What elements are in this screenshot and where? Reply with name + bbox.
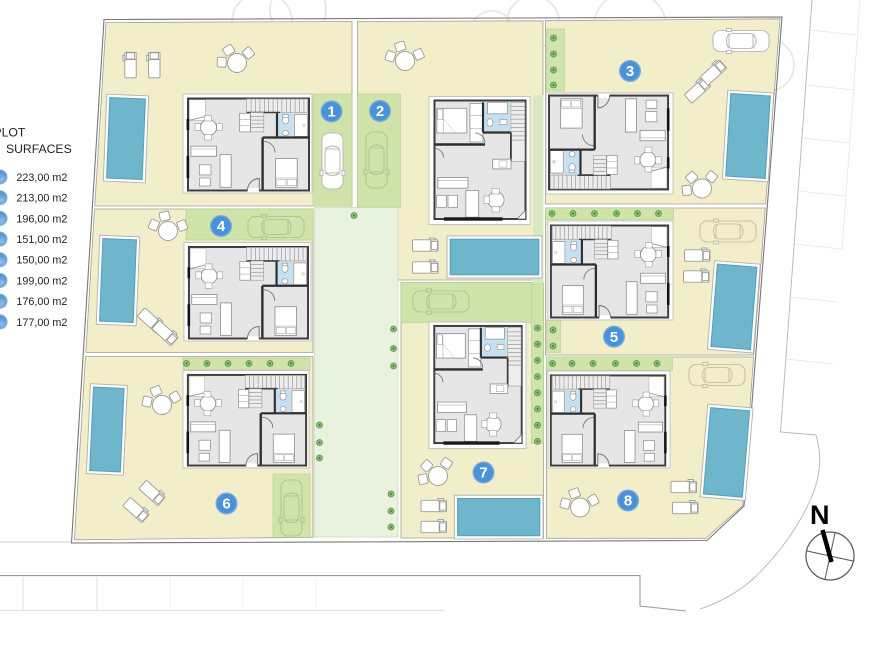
- svg-text:213,00 m2: 213,00 m2: [16, 193, 67, 205]
- svg-text:177,00 m2: 177,00 m2: [16, 317, 67, 329]
- svg-text:7: 7: [479, 465, 487, 482]
- svg-text:223,00 m2: 223,00 m2: [16, 172, 67, 184]
- svg-text:2: 2: [376, 103, 384, 120]
- svg-text:199,00 m2: 199,00 m2: [16, 275, 67, 287]
- svg-text:5: 5: [610, 329, 618, 346]
- svg-text:4: 4: [217, 218, 226, 235]
- svg-text:176,00 m2: 176,00 m2: [16, 296, 67, 308]
- svg-text:N: N: [810, 500, 830, 530]
- svg-text:1: 1: [327, 104, 335, 121]
- svg-text:150,00 m2: 150,00 m2: [16, 255, 67, 267]
- svg-text:8: 8: [624, 493, 632, 510]
- svg-text:151,00 m2: 151,00 m2: [16, 234, 67, 246]
- svg-text:6: 6: [222, 496, 230, 513]
- svg-text:PLOT: PLOT: [0, 126, 26, 140]
- svg-text:196,00 m2: 196,00 m2: [16, 213, 67, 225]
- svg-text:SURFACES: SURFACES: [6, 142, 72, 156]
- svg-text:3: 3: [626, 63, 634, 80]
